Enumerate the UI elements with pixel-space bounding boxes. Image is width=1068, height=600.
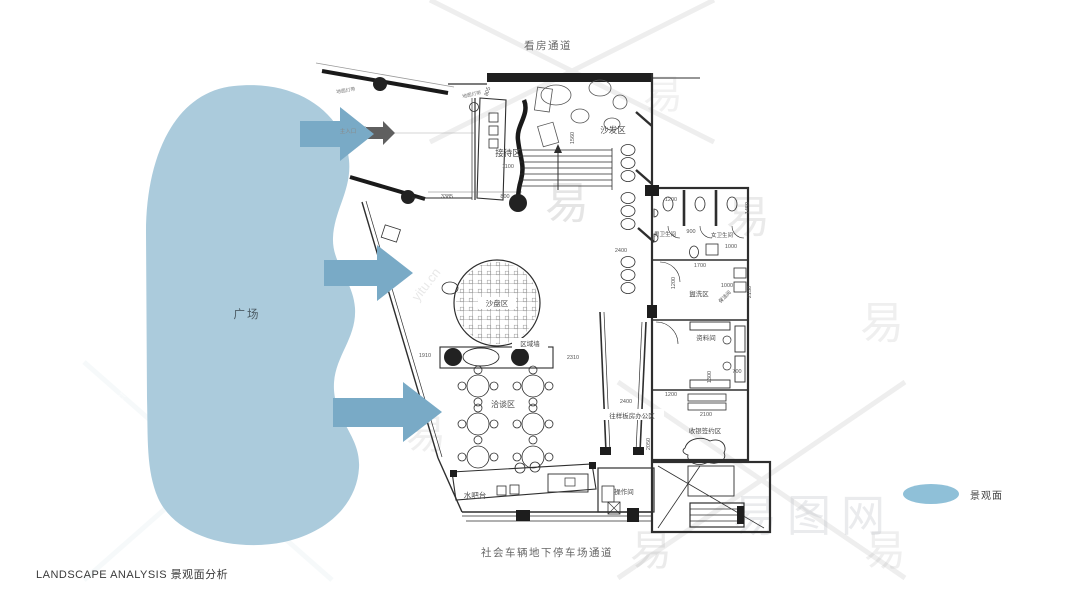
room-label-7: 沙盘区: [486, 298, 509, 308]
dim-label-7: 2400: [615, 248, 627, 254]
room-label-10: 往样板房办公区: [609, 411, 655, 420]
page-title: LANDSCAPE ANALYSIS 景观面分析: [36, 566, 228, 582]
column: [509, 194, 527, 212]
top-wall: [487, 73, 652, 82]
landscape-analysis-page: 易易易易易易易易易易yitu.cnyitu.cnyitu.cnyitu.cn易图…: [0, 0, 1068, 600]
dim-label-13: 1700: [694, 263, 706, 269]
watermark-brand: 易图网: [733, 492, 895, 541]
dim-label-15: 1000: [721, 283, 733, 289]
dim-label-8: 2400: [620, 399, 632, 405]
room-label-13: 操作间: [614, 487, 634, 496]
dim-label-19: 1200: [665, 392, 677, 398]
legend: 景观面: [903, 484, 1003, 504]
watermark-yi-5: 易: [860, 299, 904, 348]
column: [444, 348, 462, 366]
bottom-corridor-label: 社会车辆地下停车场通道: [481, 545, 613, 560]
dim-label-11: 1450: [745, 202, 751, 214]
column: [373, 77, 387, 91]
dim-label-16: 2150: [747, 286, 753, 298]
room-label-8: 区域墙: [520, 339, 540, 348]
dim-label-5: 1910: [419, 353, 431, 359]
plaza-label: 广场: [234, 306, 261, 322]
watermark-yi-7: 易: [630, 527, 672, 574]
dim-label-21: 2050: [646, 438, 652, 450]
dim-label-1: 1100: [502, 164, 514, 170]
legend-label: 景观面: [970, 487, 1003, 502]
column: [511, 348, 529, 366]
room-label-2: 男卫生间: [654, 230, 676, 238]
room-label-3: 女卫生间: [711, 231, 733, 239]
room-label-15: 地面灯带: [336, 86, 356, 96]
column: [401, 190, 415, 204]
room-label-9: 洽谈区: [491, 399, 515, 409]
dim-label-10: 900: [686, 229, 695, 235]
landscape-face-swatch-icon: [903, 484, 959, 504]
room-label-12: 水吧台: [464, 490, 487, 500]
sample-room-corridor: [600, 312, 664, 455]
dim-label-17: 1300: [707, 371, 713, 383]
dim-label-6: 2310: [567, 355, 579, 361]
room-label-6: 资料间: [696, 333, 716, 342]
watermark-yi-0: 易: [78, 280, 124, 332]
dimension-labels: 3385110080080515601910231024002400120090…: [419, 86, 753, 450]
dim-label-18: 700: [732, 369, 741, 375]
room-label-1: 沙发区: [600, 125, 626, 135]
room-label-14: 主入口: [340, 127, 357, 135]
room-label-4: 盥洗区: [689, 289, 709, 298]
dim-label-12: 1000: [725, 244, 737, 250]
watermark-url-2: yitu.cn: [97, 385, 132, 424]
dim-label-20: 2100: [700, 412, 712, 418]
dim-label-0: 3385: [441, 194, 453, 200]
room-label-5: 保洁间: [717, 289, 733, 305]
dim-label-9: 1200: [665, 197, 677, 203]
dim-label-14: 1200: [671, 277, 677, 289]
bottom-walkway: [462, 508, 652, 522]
landscape-analysis-canvas: 易易易易易易易易易易yitu.cnyitu.cnyitu.cnyitu.cn易图…: [0, 0, 1068, 600]
room-label-0: 接待区: [495, 148, 521, 158]
dim-label-3: 805: [484, 86, 493, 97]
watermark-url-3: yitu.cn: [409, 265, 444, 304]
dim-label-4: 1560: [570, 132, 576, 144]
dim-label-2: 800: [500, 194, 509, 200]
top-corridor-label: 看房通道: [524, 38, 572, 53]
negotiation-tables: [458, 366, 553, 468]
wall-seating: [621, 112, 654, 294]
room-label-11: 收银签约区: [689, 426, 722, 435]
